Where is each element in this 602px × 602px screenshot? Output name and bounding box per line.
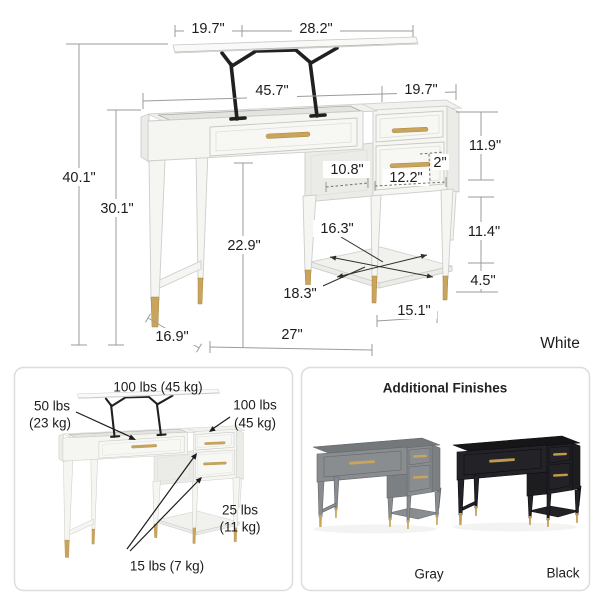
dim-shelf-width-label: 18.3" [283,286,316,302]
weight-drawers-label: 15 lbs (7 kg) [130,559,204,574]
dim-bottom: 16.9" 27" 15.1" [146,302,438,356]
weight-lift-label-line2: (23 kg) [29,416,71,431]
weight-side-label-line2: (45 kg) [234,416,276,431]
finish-name-white: White [540,335,580,352]
weight-capacity-panel: 100 lbs (45 kg) 50 lbs (23 kg) 100 lbs (… [15,368,293,591]
weight-shelf-label-line1: 25 lbs [222,503,258,518]
dim-right-heights: 11.9" 11.4" 4.5" [456,112,508,292]
dim-drawer-face-label: 2" [433,155,446,171]
diagram-canvas: 19.7" 28.2" 45.7" 19.7" 40.1" 30.1" 22.9… [0,0,602,602]
dim-clearance: 22.9" [220,163,268,348]
weight-lift-label-line1: 50 lbs [34,399,70,414]
dim-desk-depth-label: 16.9" [155,329,188,345]
dim-clearance-label: 22.9" [227,238,260,254]
finish-option-black-label: Black [546,566,579,581]
weight-top-total-label: 100 lbs (45 kg) [113,380,202,395]
dim-width-side-label: 19.7" [404,82,437,98]
weight-side-label-line1: 100 lbs [233,398,277,413]
dim-lift-right-label: 28.2" [299,21,332,37]
dim-lift-left-label: 19.7" [191,21,224,37]
dim-kneehole-width-label: 27" [281,327,302,343]
dim-desk-height: 30.1" [93,110,141,345]
finishes-title: Additional Finishes [383,381,508,396]
dim-foot-height-label: 4.5" [470,273,495,289]
dim-side-base-width-label: 15.1" [397,303,430,319]
dim-shelf-depth-label: 16.3" [320,221,353,237]
additional-finishes-panel: Additional Finishes Gray Black [302,368,590,591]
dim-drawer-section-label: 11.9" [469,138,501,154]
dim-width-main-label: 45.7" [255,83,288,99]
dim-leg-height-label: 11.4" [468,224,500,240]
dim-height-desk-label: 30.1" [100,201,133,217]
dim-side-opening-width-label: 12.2" [389,170,422,186]
dim-lift-top-widths: 19.7" 28.2" [175,19,413,37]
dim-side-opening-depth-label: 10.8" [330,162,363,178]
dim-height-total-label: 40.1" [62,170,95,186]
weight-shelf-label-line2: (11 kg) [219,520,260,535]
finish-option-gray-label: Gray [414,567,444,582]
product-dimension-sheet: 19.7" 28.2" 45.7" 19.7" 40.1" 30.1" 22.9… [0,0,602,602]
